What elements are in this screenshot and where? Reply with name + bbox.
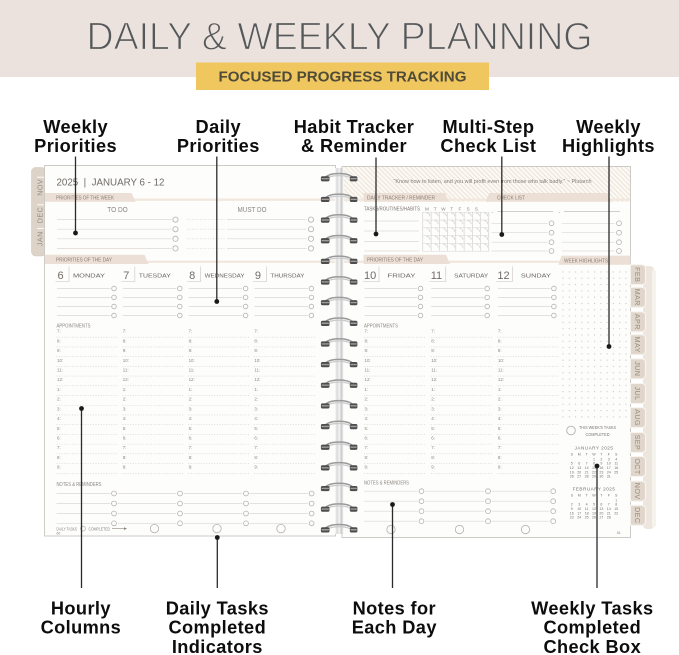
svg-text:9:: 9: — [498, 348, 502, 353]
svg-text:Priorities: Priorities — [34, 136, 117, 156]
svg-text:M: M — [425, 207, 429, 212]
svg-text:9:: 9: — [189, 348, 193, 353]
svg-text:7:: 7: — [254, 329, 258, 334]
svg-text:M: M — [578, 494, 581, 498]
svg-text:60: 60 — [57, 531, 61, 535]
svg-text:“Know how to listen, and you w: “Know how to listen, and you will profit… — [394, 179, 592, 185]
svg-text:7:: 7: — [57, 329, 61, 334]
svg-text:12:: 12: — [189, 377, 195, 382]
svg-text:1:: 1: — [254, 387, 258, 392]
svg-text:6:: 6: — [254, 436, 258, 441]
svg-text:DEC: DEC — [633, 507, 642, 523]
svg-text:DEC: DEC — [35, 207, 44, 223]
svg-text:29: 29 — [592, 475, 596, 479]
svg-text:26: 26 — [570, 475, 574, 479]
svg-text:3:: 3: — [498, 406, 502, 411]
svg-text:5:: 5: — [57, 426, 61, 431]
svg-text:9:: 9: — [498, 465, 502, 470]
svg-text:4:: 4: — [123, 416, 127, 421]
svg-text:10:: 10: — [57, 358, 63, 363]
svg-text:11:: 11: — [189, 367, 195, 372]
svg-text:31: 31 — [607, 475, 611, 479]
svg-text:4:: 4: — [189, 416, 193, 421]
svg-text:23: 23 — [570, 516, 574, 520]
svg-text:9:: 9: — [254, 465, 258, 470]
svg-text:MAR: MAR — [633, 289, 642, 306]
svg-text:12:: 12: — [57, 377, 63, 382]
svg-text:Completed: Completed — [544, 618, 642, 638]
svg-text:7:: 7: — [431, 329, 435, 334]
svg-text:9:: 9: — [365, 348, 369, 353]
svg-text:Notes for: Notes for — [353, 599, 436, 619]
svg-text:THURSDAY: THURSDAY — [270, 274, 304, 280]
svg-text:JAN: JAN — [35, 231, 44, 246]
svg-text:8:: 8: — [254, 338, 258, 343]
svg-text:5:: 5: — [365, 426, 369, 431]
svg-text:12:: 12: — [123, 377, 129, 382]
svg-text:TUESDAY: TUESDAY — [139, 274, 171, 280]
svg-text:5:: 5: — [189, 426, 193, 431]
svg-text:24: 24 — [577, 516, 581, 520]
svg-text:Daily: Daily — [196, 117, 242, 137]
svg-text:Columns: Columns — [41, 618, 122, 638]
svg-text:W: W — [441, 207, 446, 212]
svg-text:Each Day: Each Day — [352, 618, 438, 638]
svg-text:T: T — [450, 207, 453, 212]
svg-text:PRIORITIES OF THE WEEK: PRIORITIES OF THE WEEK — [56, 196, 114, 202]
svg-text:12:: 12: — [254, 377, 260, 382]
svg-text:7:: 7: — [498, 445, 502, 450]
svg-text:5:: 5: — [498, 426, 502, 431]
svg-text:2:: 2: — [123, 397, 127, 402]
svg-text:11:: 11: — [123, 367, 129, 372]
svg-text:Check Box: Check Box — [543, 637, 641, 655]
svg-text:12:: 12: — [498, 377, 504, 382]
svg-text:7:: 7: — [254, 445, 258, 450]
svg-text:22: 22 — [614, 511, 618, 515]
svg-text:61: 61 — [617, 531, 621, 535]
svg-text:COMPLETED: COMPLETED — [89, 526, 111, 531]
svg-text:1:: 1: — [498, 387, 502, 392]
svg-text:DAILY TRACKER / REMINDER: DAILY TRACKER / REMINDER — [367, 196, 435, 202]
svg-text:SUNDAY: SUNDAY — [521, 274, 551, 280]
svg-text:9:: 9: — [189, 465, 193, 470]
svg-text:11:: 11: — [57, 367, 63, 372]
svg-text:8:: 8: — [189, 338, 193, 343]
svg-text:DAILY & WEEKLY PLANNING: DAILY & WEEKLY PLANNING — [87, 16, 593, 59]
svg-text:TO DO: TO DO — [107, 207, 128, 214]
svg-text:2025 | JANUARY 6 - 12: 2025 | JANUARY 6 - 12 — [57, 178, 165, 189]
svg-text:8:: 8: — [123, 455, 127, 460]
svg-text:11: 11 — [431, 270, 442, 282]
svg-text:8:: 8: — [365, 455, 369, 460]
svg-text:Hourly: Hourly — [51, 599, 111, 619]
svg-text:12: 12 — [497, 270, 509, 282]
svg-text:6: 6 — [58, 270, 64, 282]
svg-text:26: 26 — [592, 516, 596, 520]
svg-text:Highlights: Highlights — [562, 136, 655, 156]
svg-text:9:: 9: — [123, 465, 127, 470]
svg-text:SEP: SEP — [633, 435, 642, 451]
svg-text:OCT: OCT — [633, 458, 642, 475]
svg-text:6:: 6: — [123, 436, 127, 441]
svg-text:8:: 8: — [498, 455, 502, 460]
svg-text:27: 27 — [577, 475, 581, 479]
svg-text:T: T — [434, 207, 437, 212]
svg-text:AUG: AUG — [633, 409, 642, 426]
svg-text:2:: 2: — [57, 397, 61, 402]
svg-text:5:: 5: — [431, 426, 435, 431]
svg-text:8:: 8: — [189, 455, 193, 460]
svg-text:28: 28 — [607, 516, 611, 520]
svg-text:SATURDAY: SATURDAY — [454, 274, 488, 280]
svg-text:9:: 9: — [254, 348, 258, 353]
svg-text:MAY: MAY — [633, 337, 642, 353]
svg-text:4:: 4: — [431, 416, 435, 421]
svg-text:2:: 2: — [431, 397, 435, 402]
svg-text:7:: 7: — [123, 445, 127, 450]
svg-text:& Reminder: & Reminder — [301, 136, 407, 156]
svg-text:25: 25 — [614, 470, 618, 474]
svg-text:7:: 7: — [365, 329, 369, 334]
svg-text:10:: 10: — [498, 358, 504, 363]
svg-text:4:: 4: — [254, 416, 258, 421]
svg-text:Check List: Check List — [440, 136, 536, 156]
svg-text:7:: 7: — [123, 329, 127, 334]
svg-text:APR: APR — [633, 314, 642, 330]
svg-text:WEEK HIGHLIGHTS: WEEK HIGHLIGHTS — [564, 258, 608, 264]
svg-text:JUL: JUL — [633, 387, 642, 401]
svg-text:7:: 7: — [57, 445, 61, 450]
svg-text:10:: 10: — [431, 358, 437, 363]
svg-text:4:: 4: — [498, 416, 502, 421]
svg-text:11:: 11: — [254, 367, 260, 372]
svg-text:27: 27 — [599, 516, 603, 520]
svg-text:7:: 7: — [498, 329, 502, 334]
svg-text:8:: 8: — [254, 455, 258, 460]
svg-text:9:: 9: — [431, 465, 435, 470]
svg-text:10:: 10: — [189, 358, 195, 363]
svg-text:1:: 1: — [189, 387, 193, 392]
svg-text:1:: 1: — [431, 387, 435, 392]
svg-text:1:: 1: — [365, 387, 369, 392]
svg-text:NOTES & REMINDERS: NOTES & REMINDERS — [364, 481, 409, 487]
svg-text:2:: 2: — [365, 397, 369, 402]
svg-text:Indicators: Indicators — [172, 637, 263, 655]
svg-text:Weekly: Weekly — [576, 117, 641, 137]
svg-text:9:: 9: — [57, 465, 61, 470]
svg-text:3:: 3: — [431, 406, 435, 411]
svg-text:Priorities: Priorities — [177, 136, 260, 156]
svg-text:FEBRUARY 2025: FEBRUARY 2025 — [573, 486, 616, 491]
svg-text:5:: 5: — [254, 426, 258, 431]
svg-text:Habit Tracker: Habit Tracker — [294, 117, 414, 137]
svg-text:5:: 5: — [123, 426, 127, 431]
svg-text:9:: 9: — [57, 348, 61, 353]
svg-text:COMPLETED: COMPLETED — [586, 432, 610, 437]
svg-text:F: F — [459, 207, 462, 212]
svg-text:3:: 3: — [365, 406, 369, 411]
svg-text:9:: 9: — [365, 465, 369, 470]
svg-text:8: 8 — [189, 270, 195, 282]
svg-text:8:: 8: — [498, 338, 502, 343]
svg-text:4:: 4: — [57, 416, 61, 421]
svg-text:JANUARY 2025: JANUARY 2025 — [575, 445, 614, 450]
svg-text:M: M — [578, 453, 581, 457]
svg-text:PRIORITIES OF THE DAY: PRIORITIES OF THE DAY — [56, 257, 112, 263]
svg-text:11:: 11: — [365, 367, 371, 372]
svg-text:6:: 6: — [57, 436, 61, 441]
svg-text:FRIDAY: FRIDAY — [388, 274, 416, 280]
svg-text:7:: 7: — [431, 445, 435, 450]
svg-text:8:: 8: — [57, 338, 61, 343]
svg-text:TASKS/ROUTINES/HABITS: TASKS/ROUTINES/HABITS — [364, 207, 420, 213]
svg-text:PRIORITIES OF THE DAY: PRIORITIES OF THE DAY — [367, 257, 423, 263]
svg-text:28: 28 — [585, 475, 589, 479]
svg-text:8:: 8: — [123, 338, 127, 343]
svg-text:Daily Tasks: Daily Tasks — [166, 599, 269, 619]
svg-text:FOCUSED PROGRESS TRACKING: FOCUSED PROGRESS TRACKING — [219, 69, 467, 86]
svg-text:10:: 10: — [365, 358, 371, 363]
svg-text:9: 9 — [255, 270, 261, 282]
svg-text:W: W — [592, 453, 596, 457]
svg-text:NOTES & REMINDERS: NOTES & REMINDERS — [57, 482, 102, 488]
svg-text:6:: 6: — [498, 436, 502, 441]
svg-text:6:: 6: — [431, 436, 435, 441]
svg-text:12:: 12: — [431, 377, 437, 382]
svg-text:7:: 7: — [189, 445, 193, 450]
svg-text:11:: 11: — [431, 367, 437, 372]
svg-text:8:: 8: — [365, 338, 369, 343]
svg-text:FEB: FEB — [633, 267, 642, 282]
svg-text:Weekly Tasks: Weekly Tasks — [531, 599, 653, 619]
svg-text:NOV: NOV — [35, 179, 44, 196]
svg-text:Completed: Completed — [169, 618, 267, 638]
svg-text:S: S — [467, 207, 470, 212]
svg-text:MONDAY: MONDAY — [73, 274, 105, 280]
svg-text:8:: 8: — [57, 455, 61, 460]
svg-text:12:: 12: — [365, 377, 371, 382]
svg-text:11:: 11: — [498, 367, 504, 372]
svg-text:MUST DO: MUST DO — [238, 207, 267, 214]
svg-text:Multi-Step: Multi-Step — [442, 117, 534, 137]
svg-text:7:: 7: — [365, 445, 369, 450]
svg-text:30: 30 — [599, 475, 603, 479]
svg-text:APPOINTMENTS: APPOINTMENTS — [364, 324, 398, 330]
svg-text:25: 25 — [585, 516, 589, 520]
svg-text:7:: 7: — [189, 329, 193, 334]
svg-text:2:: 2: — [498, 397, 502, 402]
svg-text:W: W — [592, 494, 596, 498]
svg-text:NOV: NOV — [633, 483, 642, 500]
svg-text:4:: 4: — [365, 416, 369, 421]
svg-text:2:: 2: — [254, 397, 258, 402]
svg-text:10:: 10: — [123, 358, 129, 363]
svg-text:1:: 1: — [57, 387, 61, 392]
svg-text:APPOINTMENTS: APPOINTMENTS — [57, 324, 91, 330]
svg-text:3:: 3: — [254, 406, 258, 411]
svg-text:THIS WEEK'S TASKS: THIS WEEK'S TASKS — [579, 425, 616, 430]
svg-text:10: 10 — [364, 270, 376, 282]
svg-text:JUN: JUN — [633, 361, 642, 376]
svg-text:8:: 8: — [431, 338, 435, 343]
svg-text:1:: 1: — [123, 387, 127, 392]
svg-text:3:: 3: — [57, 406, 61, 411]
svg-text:3:: 3: — [123, 406, 127, 411]
svg-text:10:: 10: — [254, 358, 260, 363]
svg-text:Weekly: Weekly — [43, 117, 108, 137]
svg-text:2:: 2: — [189, 397, 193, 402]
svg-text:9:: 9: — [431, 348, 435, 353]
svg-text:9:: 9: — [123, 348, 127, 353]
svg-text:8:: 8: — [431, 455, 435, 460]
svg-text:6:: 6: — [189, 436, 193, 441]
svg-text:S: S — [475, 207, 478, 212]
svg-text:7: 7 — [123, 270, 129, 282]
svg-text:WEDNESDAY: WEDNESDAY — [205, 274, 245, 280]
svg-text:6:: 6: — [365, 436, 369, 441]
svg-text:3:: 3: — [189, 406, 193, 411]
